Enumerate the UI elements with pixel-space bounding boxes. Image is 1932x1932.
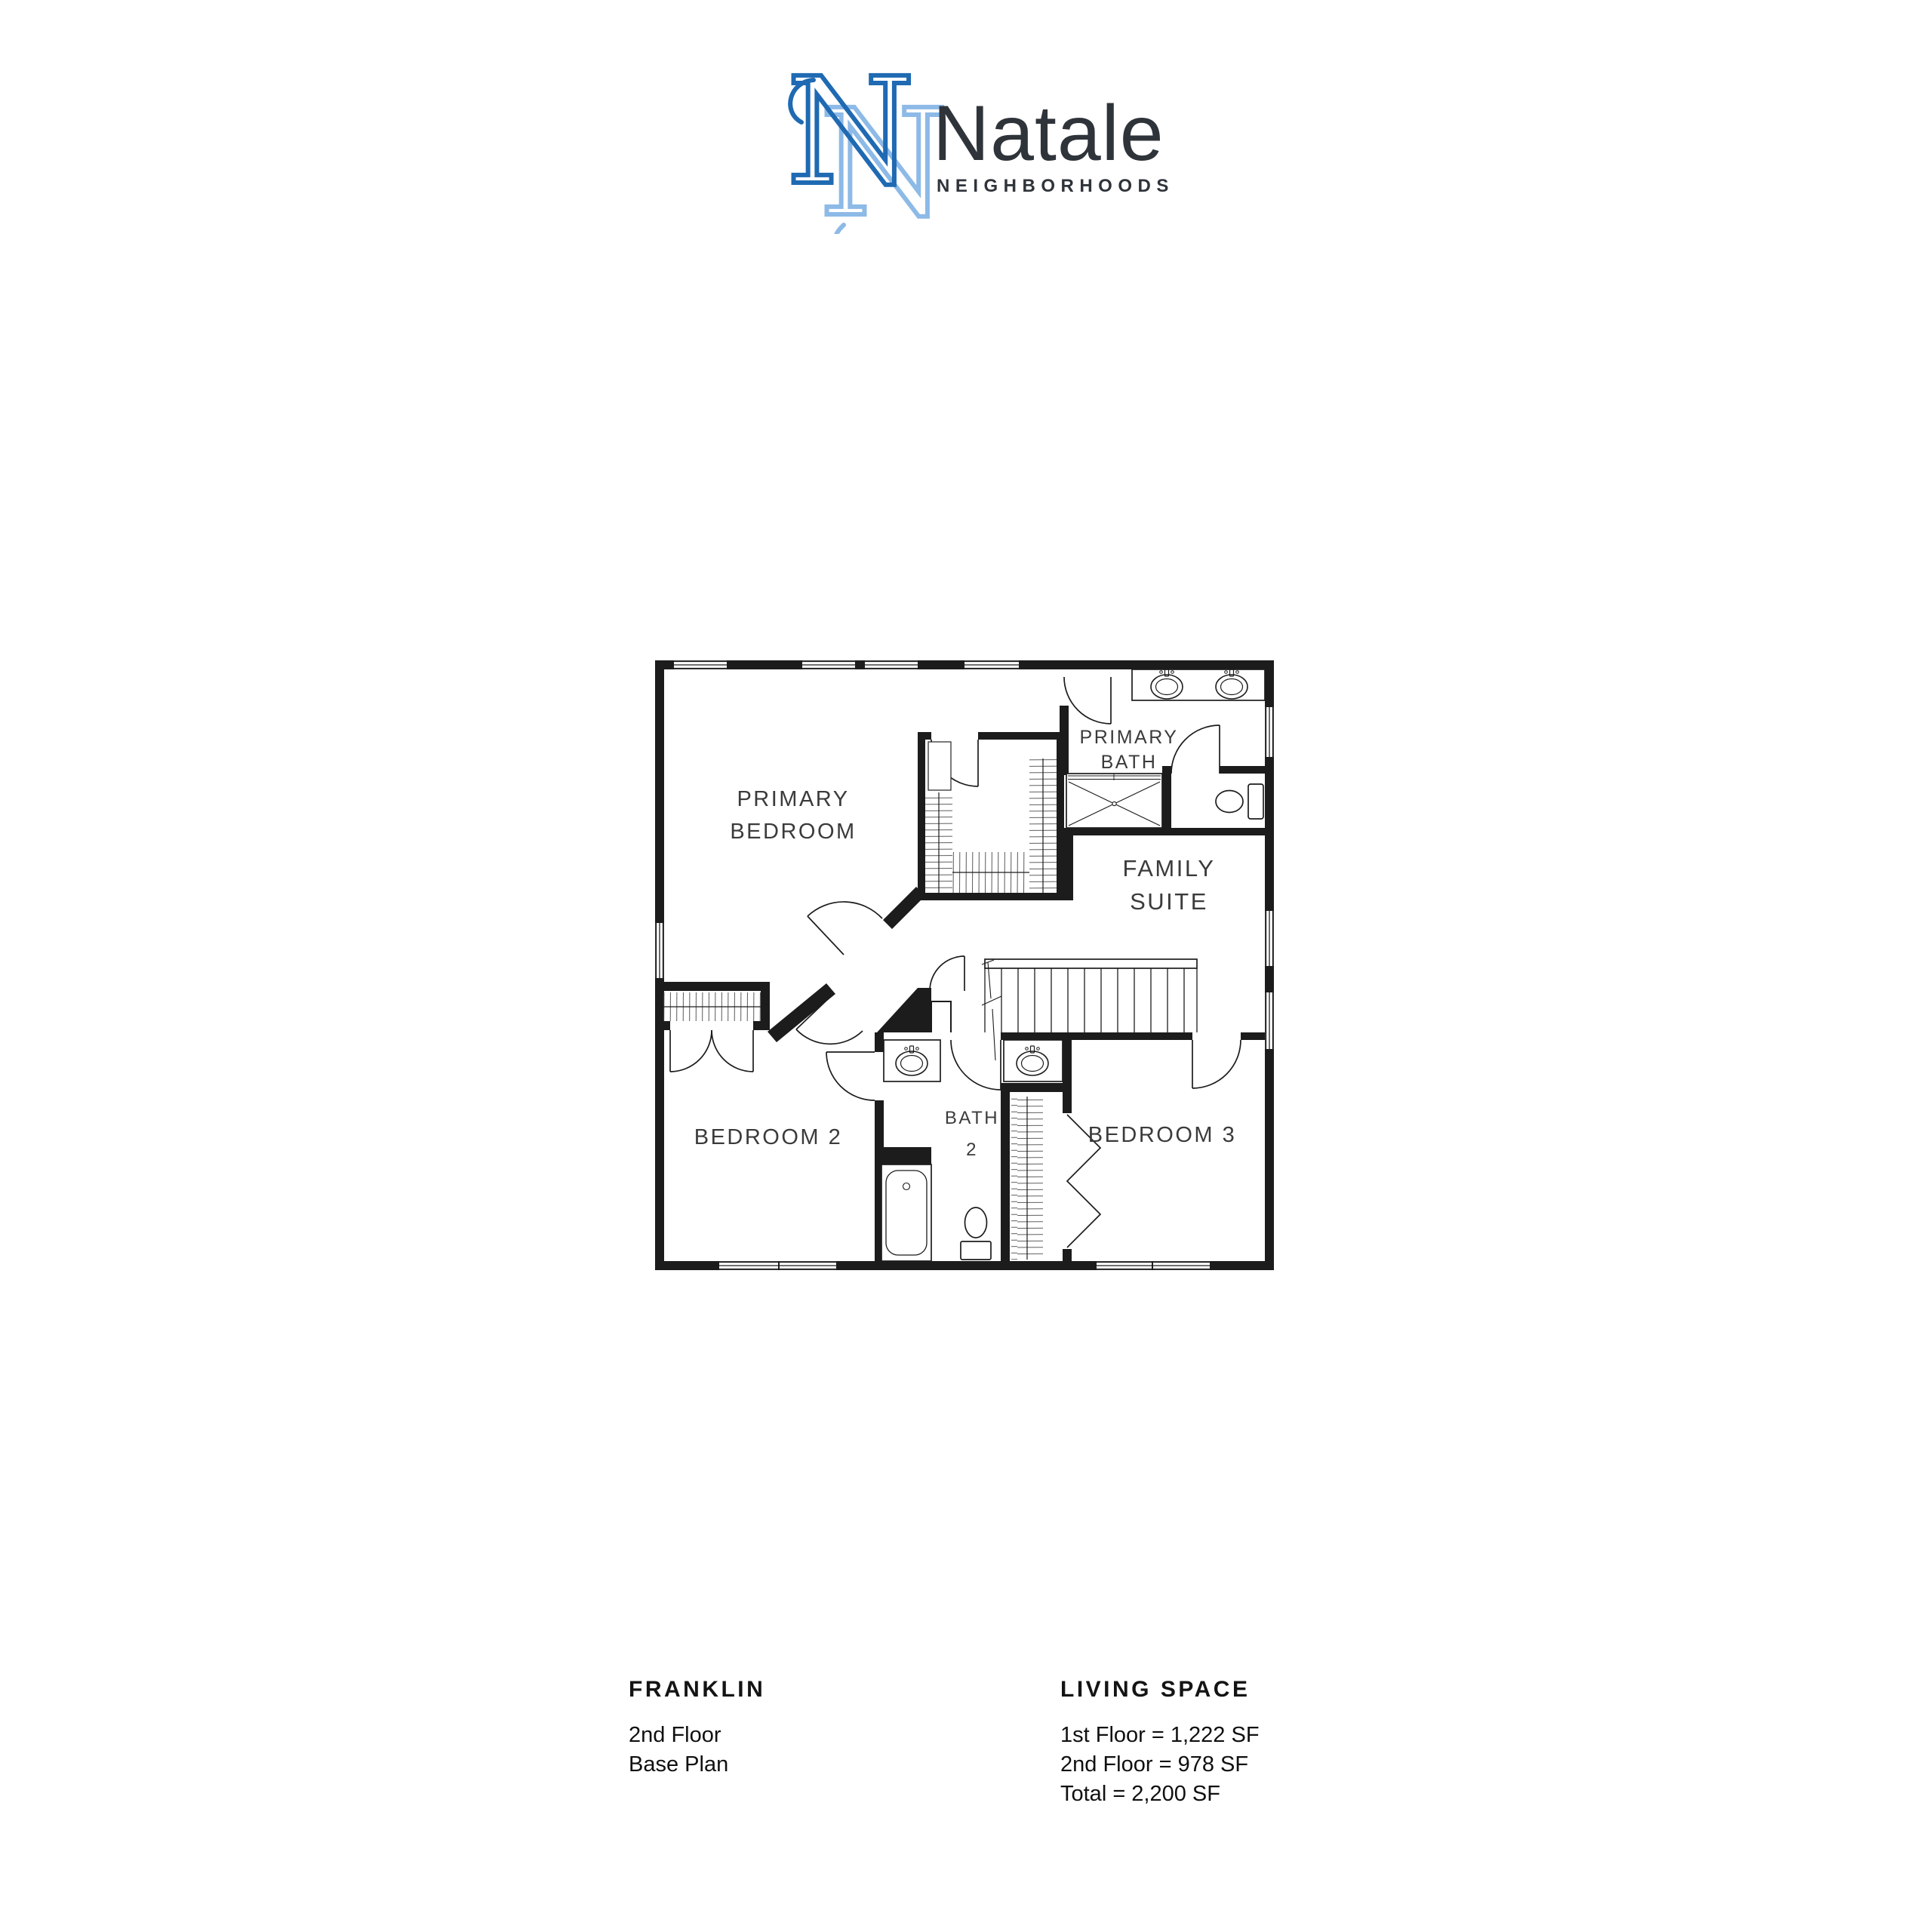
area-total: Total = 2,200 SF bbox=[1060, 1780, 1260, 1809]
window-icon bbox=[674, 661, 727, 669]
room-label-bath-2: 2 bbox=[966, 1140, 978, 1160]
closet-rod-bedroom-3 bbox=[1011, 1097, 1043, 1260]
closet-shelf bbox=[928, 742, 951, 790]
n-monogram: N N bbox=[786, 53, 949, 234]
room-label-family-suite: SUITE bbox=[1130, 888, 1208, 915]
door-arc-bedroom-2 bbox=[826, 1052, 875, 1100]
window-icon bbox=[1266, 911, 1273, 966]
window-icon bbox=[964, 661, 1019, 669]
window-icon bbox=[1266, 992, 1273, 1049]
plan-variant: Base Plan bbox=[629, 1750, 765, 1780]
stair-railing bbox=[985, 959, 1197, 968]
brand-name: Natale bbox=[933, 90, 1164, 177]
brand-tagline: NEIGHBORHOODS bbox=[937, 176, 1174, 196]
room-label-primary-bedroom: PRIMARY bbox=[737, 787, 849, 811]
window-icon bbox=[1097, 1262, 1152, 1269]
door-arc-primary-bedroom bbox=[808, 902, 882, 955]
bath-2-vanity bbox=[884, 1040, 1063, 1081]
toilet-icon bbox=[1216, 784, 1263, 819]
door-arc-water-closet bbox=[1171, 725, 1220, 774]
plan-floor: 2nd Floor bbox=[629, 1721, 765, 1750]
window-icon bbox=[802, 661, 855, 669]
window-icon bbox=[865, 661, 918, 669]
living-space-title: LIVING SPACE bbox=[1060, 1677, 1260, 1703]
window-icon bbox=[780, 1262, 836, 1269]
living-space-info: LIVING SPACE 1st Floor = 1,222 SF 2nd Fl… bbox=[1060, 1677, 1260, 1809]
door-arc-bedroom-3 bbox=[1192, 1040, 1241, 1088]
closet-rod-bedroom-2 bbox=[663, 992, 761, 1021]
room-label-primary-bath: PRIMARY bbox=[1080, 727, 1179, 748]
window-icon bbox=[656, 923, 663, 978]
door-arc-family-suite bbox=[930, 956, 964, 991]
plan-info: FRANKLIN 2nd Floor Base Plan bbox=[629, 1677, 765, 1780]
room-label-bedroom-2: BEDROOM 2 bbox=[694, 1125, 843, 1149]
double-doors-bedroom-2-closet bbox=[670, 1030, 753, 1072]
room-label-bedroom-3: BEDROOM 3 bbox=[1088, 1123, 1237, 1147]
window-icon bbox=[719, 1262, 778, 1269]
brand-logo: N N Natale NEIGHBORHOODS bbox=[770, 53, 1192, 234]
page: N N Natale NEIGHBORHOODS bbox=[0, 0, 1932, 1932]
closet-rod-primary-right bbox=[1029, 758, 1057, 893]
room-label-primary-bedroom: BEDROOM bbox=[730, 820, 856, 844]
door-arc-bath-2 bbox=[951, 1040, 1001, 1090]
bathtub-icon bbox=[881, 1147, 931, 1261]
closet-rods bbox=[663, 742, 1057, 1260]
closet-rod-primary-bottom bbox=[952, 852, 1029, 893]
shower-icon bbox=[1066, 774, 1162, 828]
door-arc-primary-bath bbox=[1064, 677, 1111, 724]
window-icon bbox=[1153, 1262, 1210, 1269]
window-icon bbox=[1266, 707, 1273, 757]
toilet-icon bbox=[961, 1207, 991, 1260]
room-label-family-suite: FAMILY bbox=[1123, 855, 1216, 881]
floor-plan: PRIMARY BEDROOM PRIMARY BATH FAMILY SUIT… bbox=[655, 660, 1277, 1273]
room-label-primary-bath: BATH bbox=[1101, 752, 1158, 773]
primary-bath-vanity bbox=[1132, 669, 1265, 700]
area-first-floor: 1st Floor = 1,222 SF bbox=[1060, 1721, 1260, 1750]
monogram-n-dark-glyph: N bbox=[786, 53, 915, 217]
room-label-bath-2: BATH bbox=[945, 1108, 999, 1128]
landing-half-wall bbox=[931, 1001, 951, 1032]
plan-name: FRANKLIN bbox=[629, 1677, 765, 1703]
area-second-floor: 2nd Floor = 978 SF bbox=[1060, 1750, 1260, 1780]
closet-rod-primary-left bbox=[925, 792, 952, 893]
